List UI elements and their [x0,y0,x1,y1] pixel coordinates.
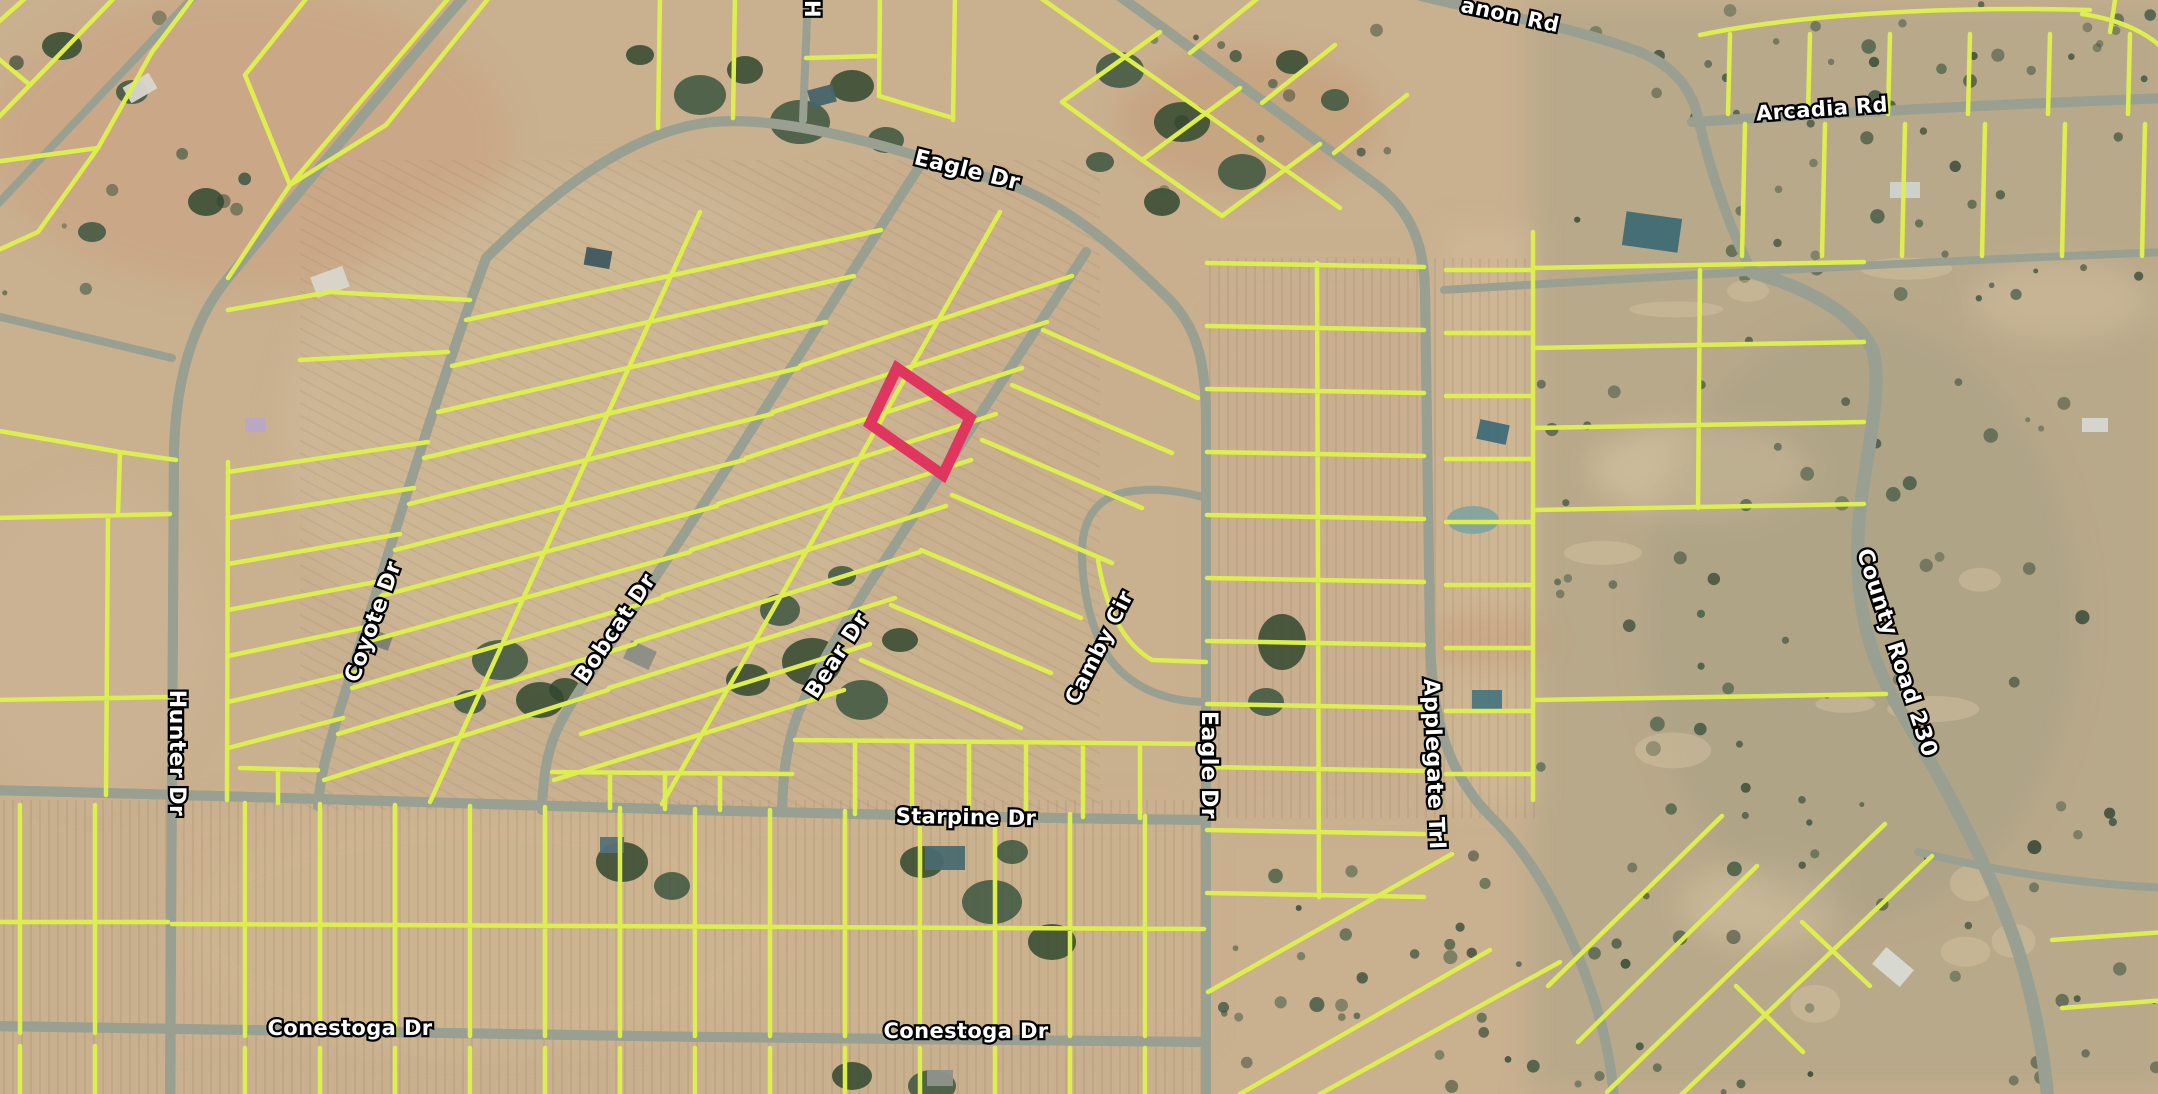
road-label-hunter-dr: Hunter Dr [164,690,189,816]
satellite-map[interactable]: anon Rd Arcadia Rd H Eagle Dr Coyote Dr … [0,0,2158,1094]
road-label-starpine-dr: Starpine Dr [896,804,1037,830]
map-viewport[interactable]: anon Rd Arcadia Rd H Eagle Dr Coyote Dr … [0,0,2158,1094]
road-label-eagle-dr-vertical: Eagle Dr [1196,711,1221,819]
road-label-conestoga-dr-west: Conestoga Dr [267,1016,432,1040]
road-label-h-partial: H [800,0,824,18]
road-label-conestoga-dr-center: Conestoga Dr [883,1019,1048,1043]
